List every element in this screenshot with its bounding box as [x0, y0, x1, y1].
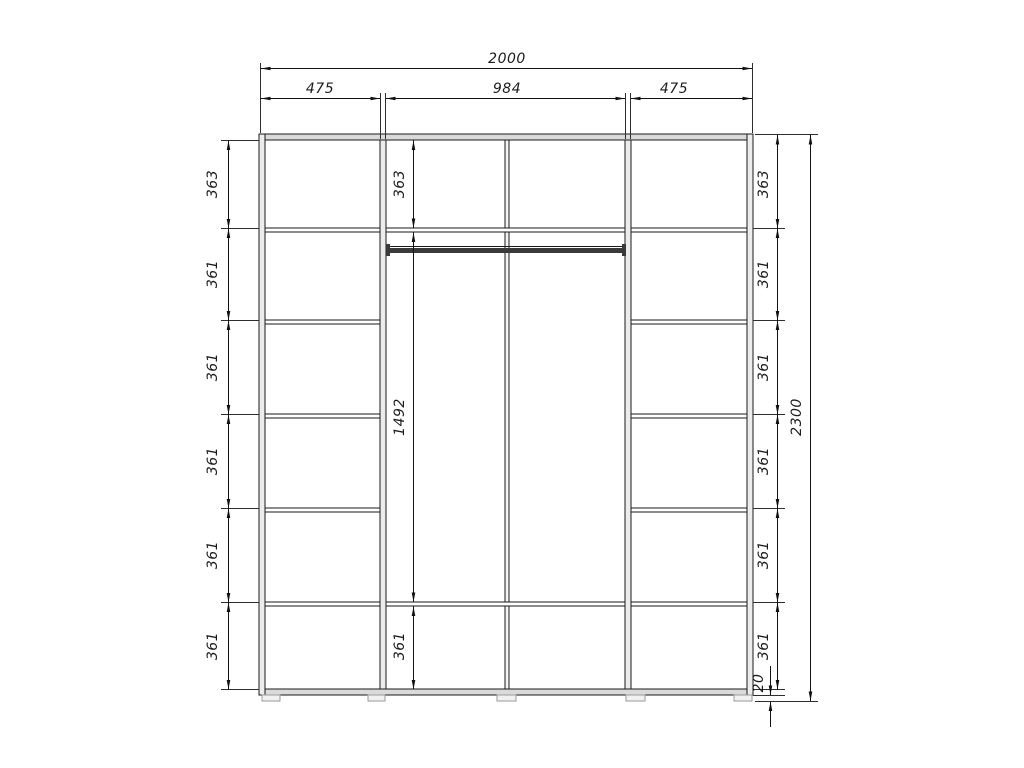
right-chain-dim-3: 361 [756, 447, 772, 475]
dim-total-height: 2300 [789, 398, 805, 436]
center-chain-dim-2: 361 [392, 632, 408, 660]
shelf-left-3 [265, 414, 380, 418]
shelf-right-1 [631, 228, 747, 232]
shelf-left-4 [265, 508, 380, 512]
left-chain-dim-5: 361 [205, 632, 221, 660]
dim-total-width: 2000 [488, 51, 526, 67]
rod-bracket-right [622, 244, 626, 256]
left-side-panel [259, 134, 265, 695]
wardrobe-dimension-drawing: 2000 475 984 475 363 361 361 361 361 361… [0, 0, 1024, 768]
shelf-center-bottom [386, 602, 625, 606]
shelf-left-1 [265, 228, 380, 232]
rod-bracket-left [386, 244, 390, 256]
right-chain-dim-1: 361 [756, 260, 772, 288]
left-partition [380, 140, 386, 689]
left-chain-dim-2: 361 [205, 353, 221, 381]
drawing-canvas: 2000 475 984 475 363 361 361 361 361 361… [0, 0, 1024, 768]
bottom-panel [259, 689, 753, 695]
foot-3 [497, 695, 516, 701]
center-divider [505, 140, 509, 689]
left-chain-dim-3: 361 [205, 447, 221, 475]
foot-1 [262, 695, 280, 701]
shelf-right-2 [631, 320, 747, 324]
dim-left-section-width: 475 [306, 81, 334, 97]
right-chain-dim-4: 361 [756, 541, 772, 569]
foot-2 [368, 695, 385, 701]
top-panel [259, 134, 753, 140]
foot-4 [626, 695, 645, 701]
left-chain-dim-4: 361 [205, 541, 221, 569]
shelf-right-3 [631, 414, 747, 418]
dim-right-section-width: 475 [660, 81, 688, 97]
center-chain-dim-1: 1492 [392, 398, 408, 436]
hanging-rod [388, 248, 625, 253]
shelf-left-5 [265, 602, 380, 606]
left-chain-dim-1: 361 [205, 260, 221, 288]
left-chain-dim-0: 363 [205, 170, 221, 198]
right-chain-dim-2: 361 [756, 353, 772, 381]
right-partition [625, 140, 631, 689]
right-chain-dim-5: 361 [756, 632, 772, 660]
dim-center-section-width: 984 [493, 81, 521, 97]
foot-5 [734, 695, 752, 701]
right-side-panel [747, 134, 753, 695]
dim-feet-height: 20 [751, 674, 767, 693]
shelf-center-top [386, 228, 625, 232]
center-chain-dim-0: 363 [392, 170, 408, 198]
shelf-right-4 [631, 508, 747, 512]
right-chain-dim-0: 363 [756, 170, 772, 198]
shelf-left-2 [265, 320, 380, 324]
shelf-right-5 [631, 602, 747, 606]
